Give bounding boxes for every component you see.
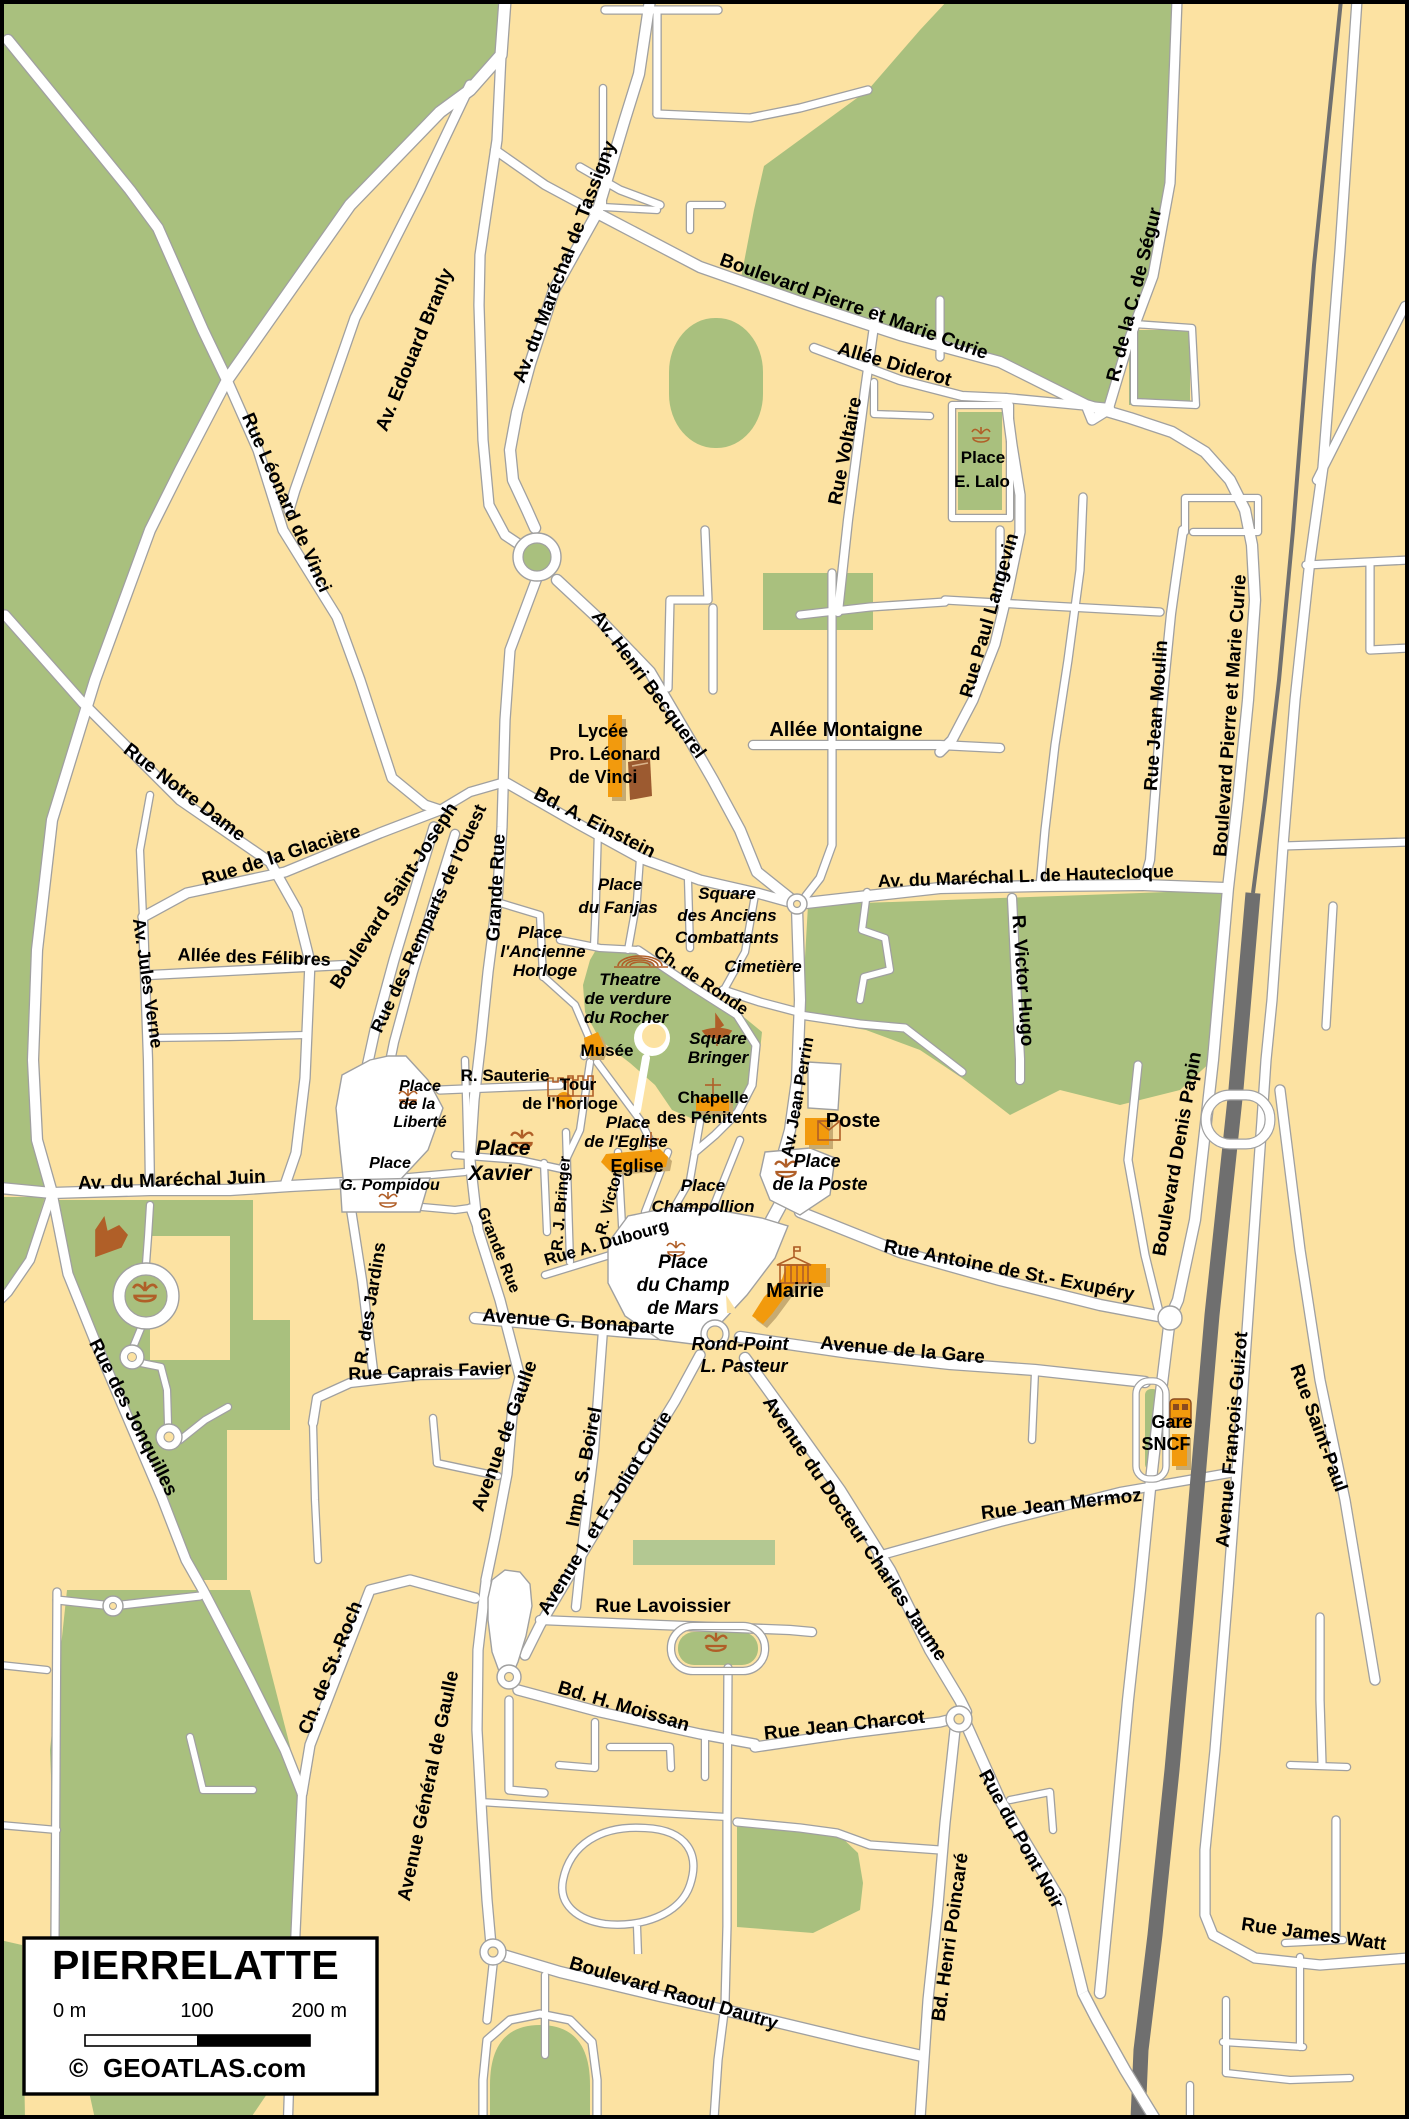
svg-text:de Vinci: de Vinci — [569, 767, 638, 787]
svg-text:Rue Lavoissier: Rue Lavoissier — [595, 1596, 731, 1617]
svg-text:Horloge: Horloge — [513, 961, 577, 980]
svg-text:GEOATLAS.com: GEOATLAS.com — [103, 2053, 306, 2083]
svg-text:Place: Place — [793, 1151, 840, 1171]
svg-text:Place: Place — [598, 875, 642, 894]
svg-text:Tour: Tour — [560, 1075, 597, 1094]
svg-text:Rond-Point: Rond-Point — [692, 1334, 790, 1354]
svg-text:Eglise: Eglise — [610, 1156, 663, 1176]
svg-text:du Rocher: du Rocher — [584, 1008, 669, 1027]
svg-text:©: © — [69, 2053, 88, 2083]
svg-text:PIERRELATTE: PIERRELATTE — [52, 1942, 339, 1988]
svg-text:100: 100 — [180, 2000, 213, 2022]
svg-text:Place: Place — [681, 1176, 725, 1195]
svg-text:des Pénitents: des Pénitents — [657, 1108, 768, 1127]
svg-text:de verdure: de verdure — [585, 989, 672, 1008]
svg-text:Square: Square — [689, 1029, 747, 1048]
svg-text:Champollion: Champollion — [652, 1197, 755, 1216]
svg-text:du Fanjas: du Fanjas — [578, 898, 657, 917]
svg-text:de la: de la — [399, 1096, 436, 1113]
svg-text:Allée Montaigne: Allée Montaigne — [769, 719, 922, 741]
svg-text:L. Pasteur: L. Pasteur — [700, 1356, 788, 1376]
svg-text:Place: Place — [399, 1078, 441, 1095]
svg-text:Theatre: Theatre — [599, 970, 660, 989]
svg-text:Xavier: Xavier — [467, 1162, 533, 1185]
svg-text:SNCF: SNCF — [1142, 1434, 1191, 1454]
svg-text:Lycée: Lycée — [578, 721, 628, 741]
svg-text:Bringer: Bringer — [688, 1048, 750, 1067]
svg-text:Musée: Musée — [581, 1041, 634, 1060]
svg-text:Poste: Poste — [826, 1110, 880, 1132]
svg-text:0 m: 0 m — [53, 2000, 86, 2022]
svg-text:de l'horloge: de l'horloge — [522, 1094, 618, 1113]
svg-text:de Mars: de Mars — [647, 1298, 719, 1319]
svg-text:de la Poste: de la Poste — [772, 1174, 867, 1194]
svg-text:Mairie: Mairie — [766, 1280, 824, 1302]
svg-text:de l'Eglise: de l'Eglise — [584, 1132, 667, 1151]
svg-text:l'Ancienne: l'Ancienne — [500, 942, 585, 961]
svg-text:Pro. Léonard: Pro. Léonard — [549, 744, 660, 764]
svg-text:R. Sauterie: R. Sauterie — [461, 1066, 550, 1085]
svg-text:G. Pompidou: G. Pompidou — [340, 1177, 440, 1194]
svg-text:Place: Place — [658, 1252, 708, 1273]
svg-text:200 m: 200 m — [291, 2000, 347, 2022]
svg-text:des Anciens: des Anciens — [677, 906, 777, 925]
svg-text:Cimetière: Cimetière — [724, 957, 801, 976]
svg-text:Place: Place — [476, 1137, 531, 1160]
svg-text:Square: Square — [698, 884, 756, 903]
svg-text:Place: Place — [961, 448, 1005, 467]
svg-text:Combattants: Combattants — [675, 928, 779, 947]
svg-text:Place: Place — [518, 923, 562, 942]
svg-text:Gare: Gare — [1151, 1412, 1192, 1432]
svg-text:Liberté: Liberté — [393, 1114, 446, 1131]
svg-text:du Champ: du Champ — [637, 1275, 730, 1296]
svg-text:Place: Place — [606, 1113, 650, 1132]
svg-text:E. Lalo: E. Lalo — [954, 472, 1010, 491]
svg-text:Chapelle: Chapelle — [678, 1088, 749, 1107]
svg-text:Place: Place — [369, 1155, 411, 1172]
